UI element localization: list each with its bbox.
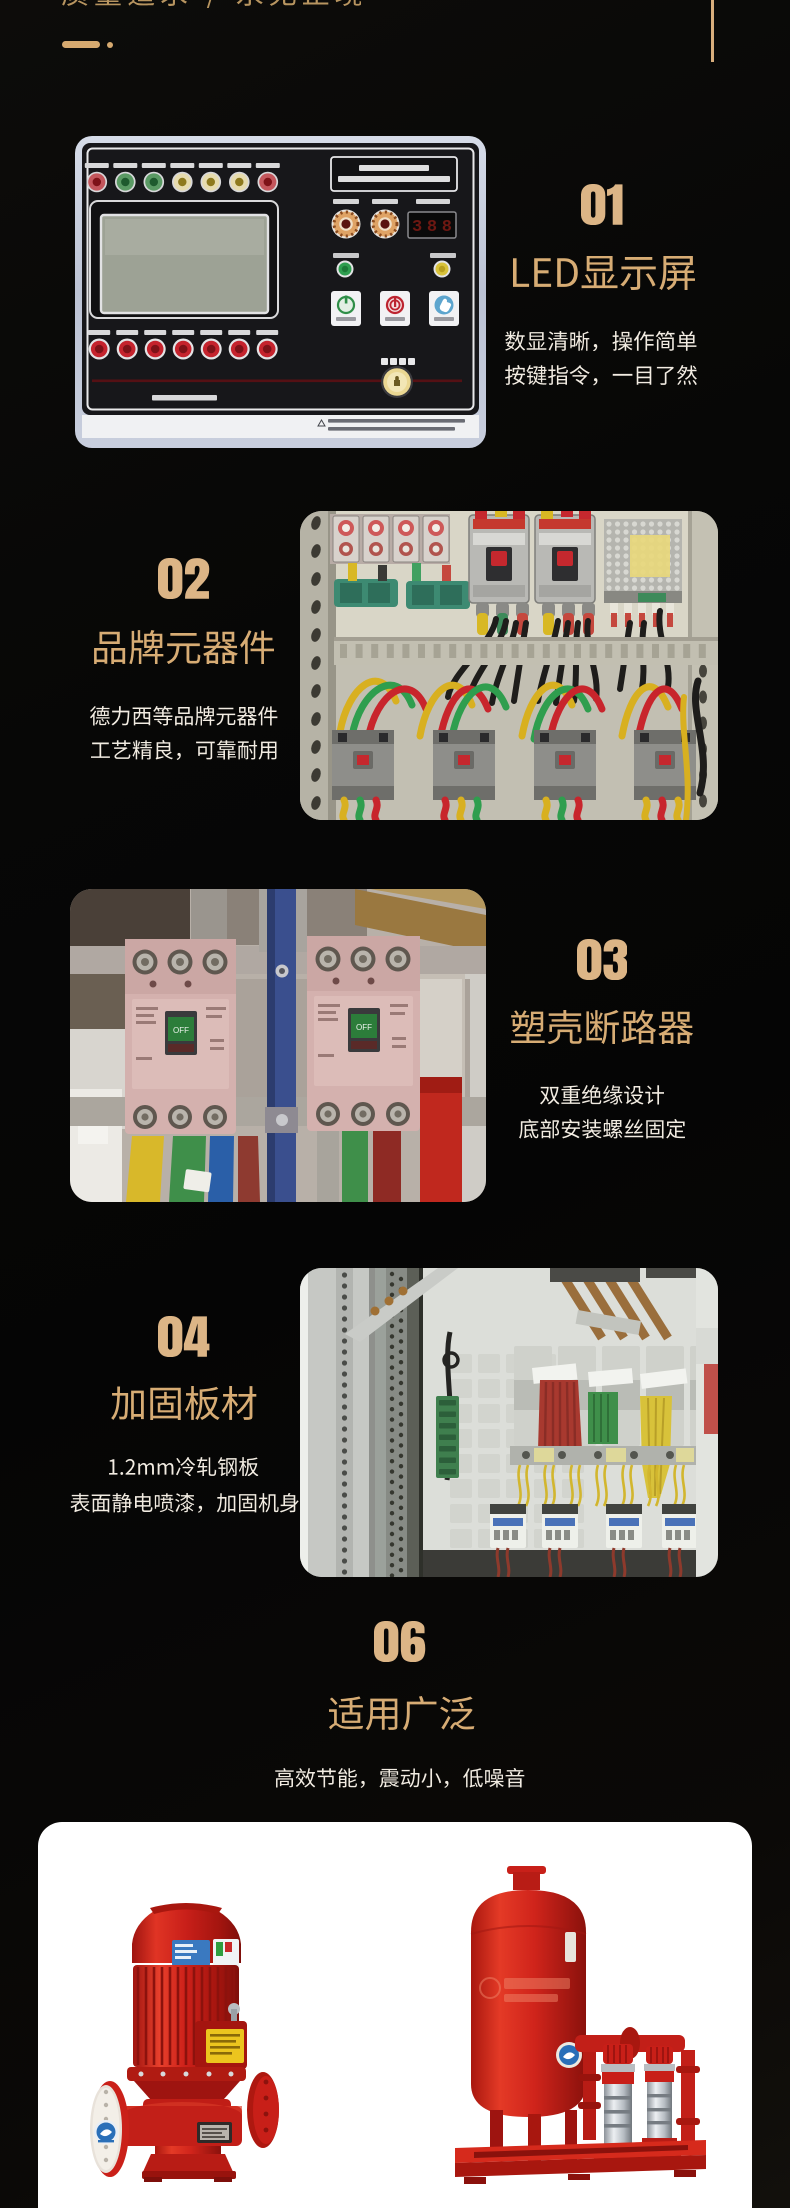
svg-text:388: 388 [412,218,452,237]
svg-text:OFF: OFF [356,1023,372,1032]
svg-text:OFF: OFF [173,1026,189,1035]
